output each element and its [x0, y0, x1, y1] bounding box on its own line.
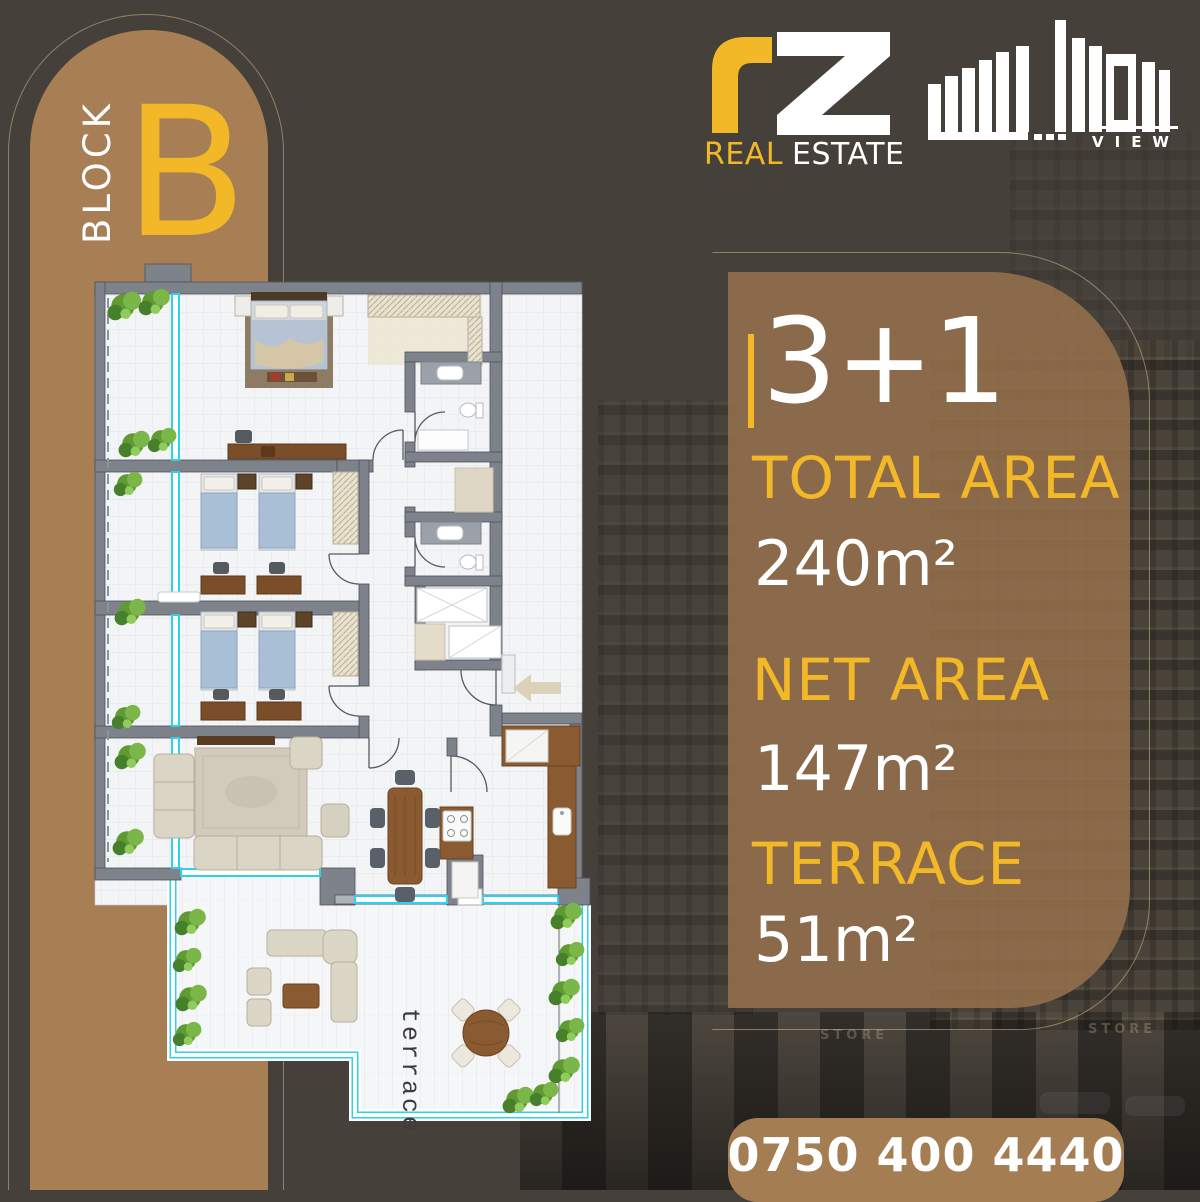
unit-type-accent-bar [748, 334, 754, 428]
store-sign: STORE [820, 1028, 888, 1043]
phone-pill[interactable]: 0750 400 4440 [728, 1118, 1124, 1202]
terrace-area-value: 51m² [754, 909, 918, 971]
phone-number: 0750 400 4440 [727, 1128, 1124, 1182]
rz-logo-z [777, 32, 890, 135]
rz-logo-estate: ESTATE [792, 137, 904, 172]
total-area-label: TOTAL AREA [752, 449, 1121, 507]
floor-plan: terrace [85, 262, 615, 1162]
terrace-area-label: TERRACE [752, 835, 1025, 893]
background-car [1040, 1092, 1110, 1114]
info-panel: 3+1 TOTAL AREA 240m² NET AREA 147m² TERR… [728, 272, 1130, 1008]
majidi-view-text: VIEW [1092, 133, 1180, 150]
rz-logo-real: REAL [704, 137, 783, 172]
block-letter: B [124, 84, 248, 264]
block-label: BLOCK [76, 108, 119, 244]
rz-logo: REALESTATE [700, 25, 900, 173]
net-area-label: NET AREA [752, 651, 1050, 709]
background-car [1125, 1096, 1185, 1116]
total-area-value: 240m² [754, 533, 958, 595]
terrace-label: terrace [395, 1008, 424, 1134]
store-sign: STORE [1088, 1022, 1156, 1037]
majidi-view-logo: VIEW [920, 18, 1190, 150]
unit-type: 3+1 [762, 302, 1005, 420]
rz-logo-wordmark: REALESTATE [704, 137, 900, 172]
flyer-root: { "background": { "store_sign": "STORE" … [0, 0, 1200, 1190]
majidi-logo-mark: VIEW [920, 18, 1190, 150]
rz-logo-r [712, 37, 772, 133]
net-area-value: 147m² [754, 738, 958, 800]
